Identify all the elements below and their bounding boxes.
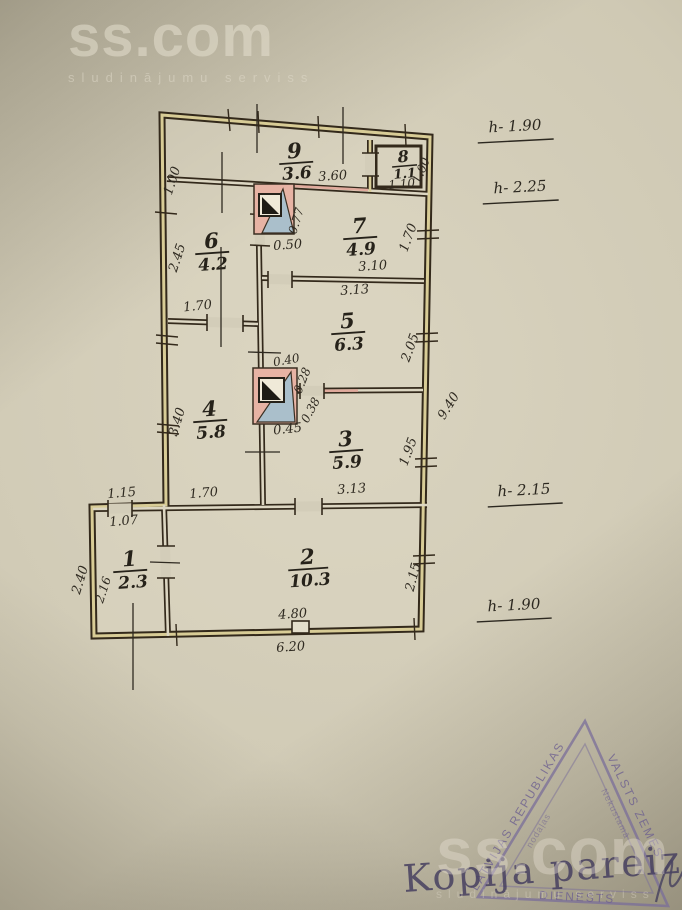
- room-area: 3.6: [282, 163, 313, 185]
- height-value: h- 2.15: [497, 480, 551, 501]
- dim-room5-top: 3.13: [340, 282, 370, 299]
- height-note-4: h- 1.90: [476, 594, 552, 622]
- dim-strip-a: 1.15: [107, 485, 137, 502]
- room-number: 5: [339, 308, 355, 334]
- dim-room3-length: 3.13: [337, 481, 367, 498]
- height-value: h- 1.90: [487, 595, 541, 616]
- dim-total-width: 6.20: [276, 639, 306, 656]
- dim-room1-width: 1.07: [109, 513, 140, 531]
- room-number: 7: [351, 213, 368, 239]
- height-annotations: h- 1.90 h- 2.25 h- 2.15 h- 1.90: [476, 115, 563, 622]
- height-value: h- 1.90: [488, 116, 542, 137]
- room-number: 3: [337, 426, 353, 452]
- room-area: 2.3: [117, 572, 149, 594]
- room-number: 4: [201, 396, 217, 422]
- room-area: 5.9: [332, 452, 363, 474]
- height-note-3: h- 2.15: [487, 479, 563, 507]
- dim-total-depth: 9.40: [435, 390, 463, 423]
- dim-room1-outer: 2.40: [69, 564, 92, 597]
- room-number: 8: [396, 147, 410, 167]
- copy-correct-stamp: Kopija pareiza: [402, 836, 682, 901]
- dim-room9-length: 3.60: [318, 168, 348, 185]
- room-area: 6.3: [334, 334, 365, 356]
- height-note-2: h- 2.25: [482, 176, 559, 204]
- room-number: 2: [298, 544, 315, 570]
- dim-strip-b: 1.70: [189, 485, 219, 502]
- room-area: 5.8: [196, 422, 227, 444]
- room-area: 4.9: [346, 239, 377, 261]
- dim-room2-length: 4.80: [277, 606, 308, 623]
- room-area: 10.3: [289, 569, 332, 592]
- dim-room6-width: 1.70: [182, 298, 212, 316]
- floor-plan-svg: 9 3.6 8 1.1 6 4.2 7 4.9 5 6: [0, 0, 682, 910]
- room-area: 4.2: [198, 254, 229, 276]
- height-note-1: h- 1.90: [477, 115, 554, 143]
- dim-stove2-d: 0.45: [272, 421, 302, 439]
- room-number: 6: [203, 228, 220, 254]
- dim-room7-length: 3.10: [358, 258, 388, 275]
- height-value: h- 2.25: [493, 177, 547, 198]
- stamp-text-inner-left: nodaļas: [524, 811, 552, 849]
- dim-stove1-b: 0.50: [273, 237, 303, 254]
- room-number: 9: [286, 138, 303, 164]
- entrance-door-mark: [292, 621, 309, 633]
- scanned-floor-plan-page: ss.com sludinājumu serviss: [0, 0, 682, 910]
- stove-2: [253, 368, 297, 424]
- room-number: 1: [121, 546, 137, 572]
